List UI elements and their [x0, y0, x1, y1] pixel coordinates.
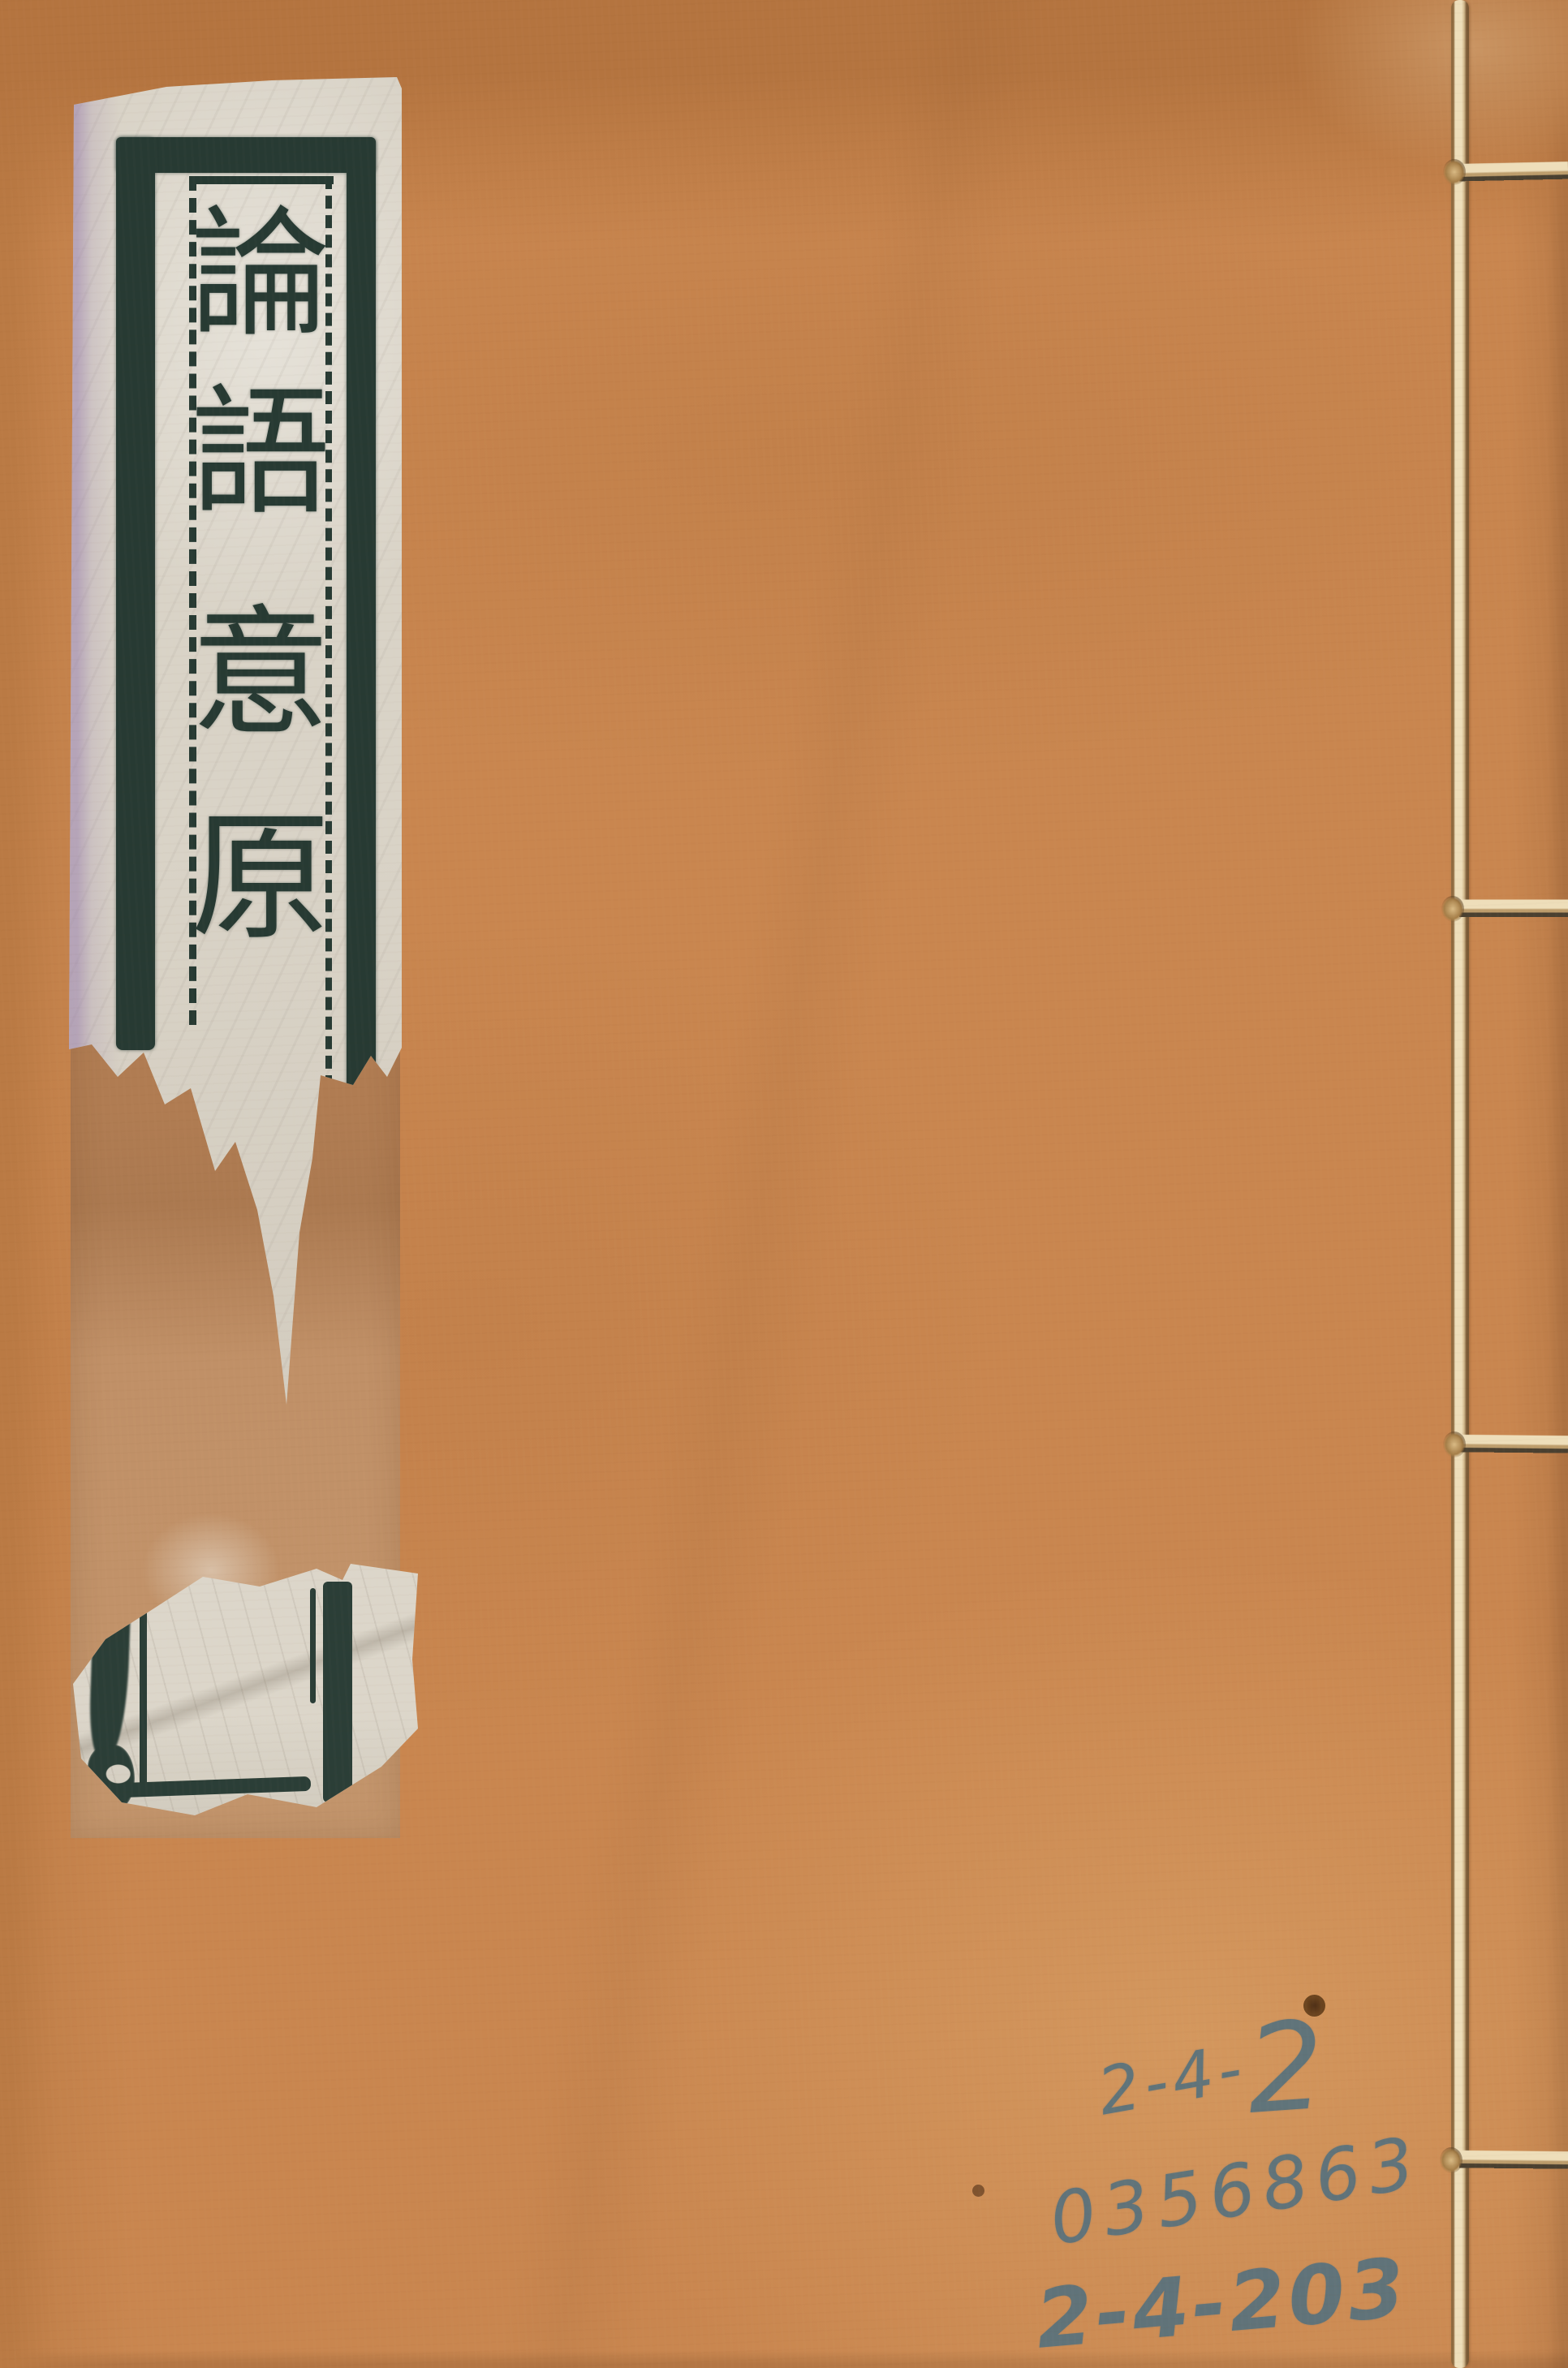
binding-stitch-4	[1459, 2148, 1568, 2170]
binding-thread-vertical	[1451, 0, 1469, 2368]
book-cover: 論 語 意 原 2-4-2 0356863 2-4-203	[0, 0, 1568, 2368]
thread-knot-4	[1440, 2147, 1462, 2173]
title-label: 論 語 意 原	[69, 77, 402, 1838]
title-character-1: 論	[179, 181, 342, 368]
binding-stitch-1	[1459, 160, 1568, 183]
label-border-outer-right	[347, 139, 376, 1143]
fragment-thin-line-right	[310, 1588, 316, 1703]
stain-dot-small	[972, 2185, 984, 2197]
label-border-outer-left	[116, 137, 155, 1050]
binding-stitch-2	[1459, 898, 1568, 919]
title-character-4: 原	[179, 785, 342, 971]
pencil-call-number-line-2: 2-4-203	[1032, 2240, 1411, 2367]
title-character-3: 意	[179, 580, 342, 767]
pencil-call-number-line-1: 2-4-2	[1092, 2016, 1329, 2129]
binding-stitch-3	[1459, 1432, 1568, 1454]
label-border-outer-top	[116, 137, 376, 173]
thread-knot-2	[1441, 896, 1464, 922]
fragment-border-bar-right	[323, 1582, 352, 1802]
thread-knot-3	[1443, 1432, 1466, 1457]
pencil-accession-number: 0356863	[1045, 2120, 1428, 2262]
thread-knot-1	[1443, 159, 1466, 185]
stain-dot-large	[1303, 1995, 1325, 2017]
pencil-large-digit: 2	[1247, 2066, 1324, 2072]
fragment-border-bar-bottom	[120, 1776, 311, 1798]
title-character-2: 語	[179, 360, 342, 546]
